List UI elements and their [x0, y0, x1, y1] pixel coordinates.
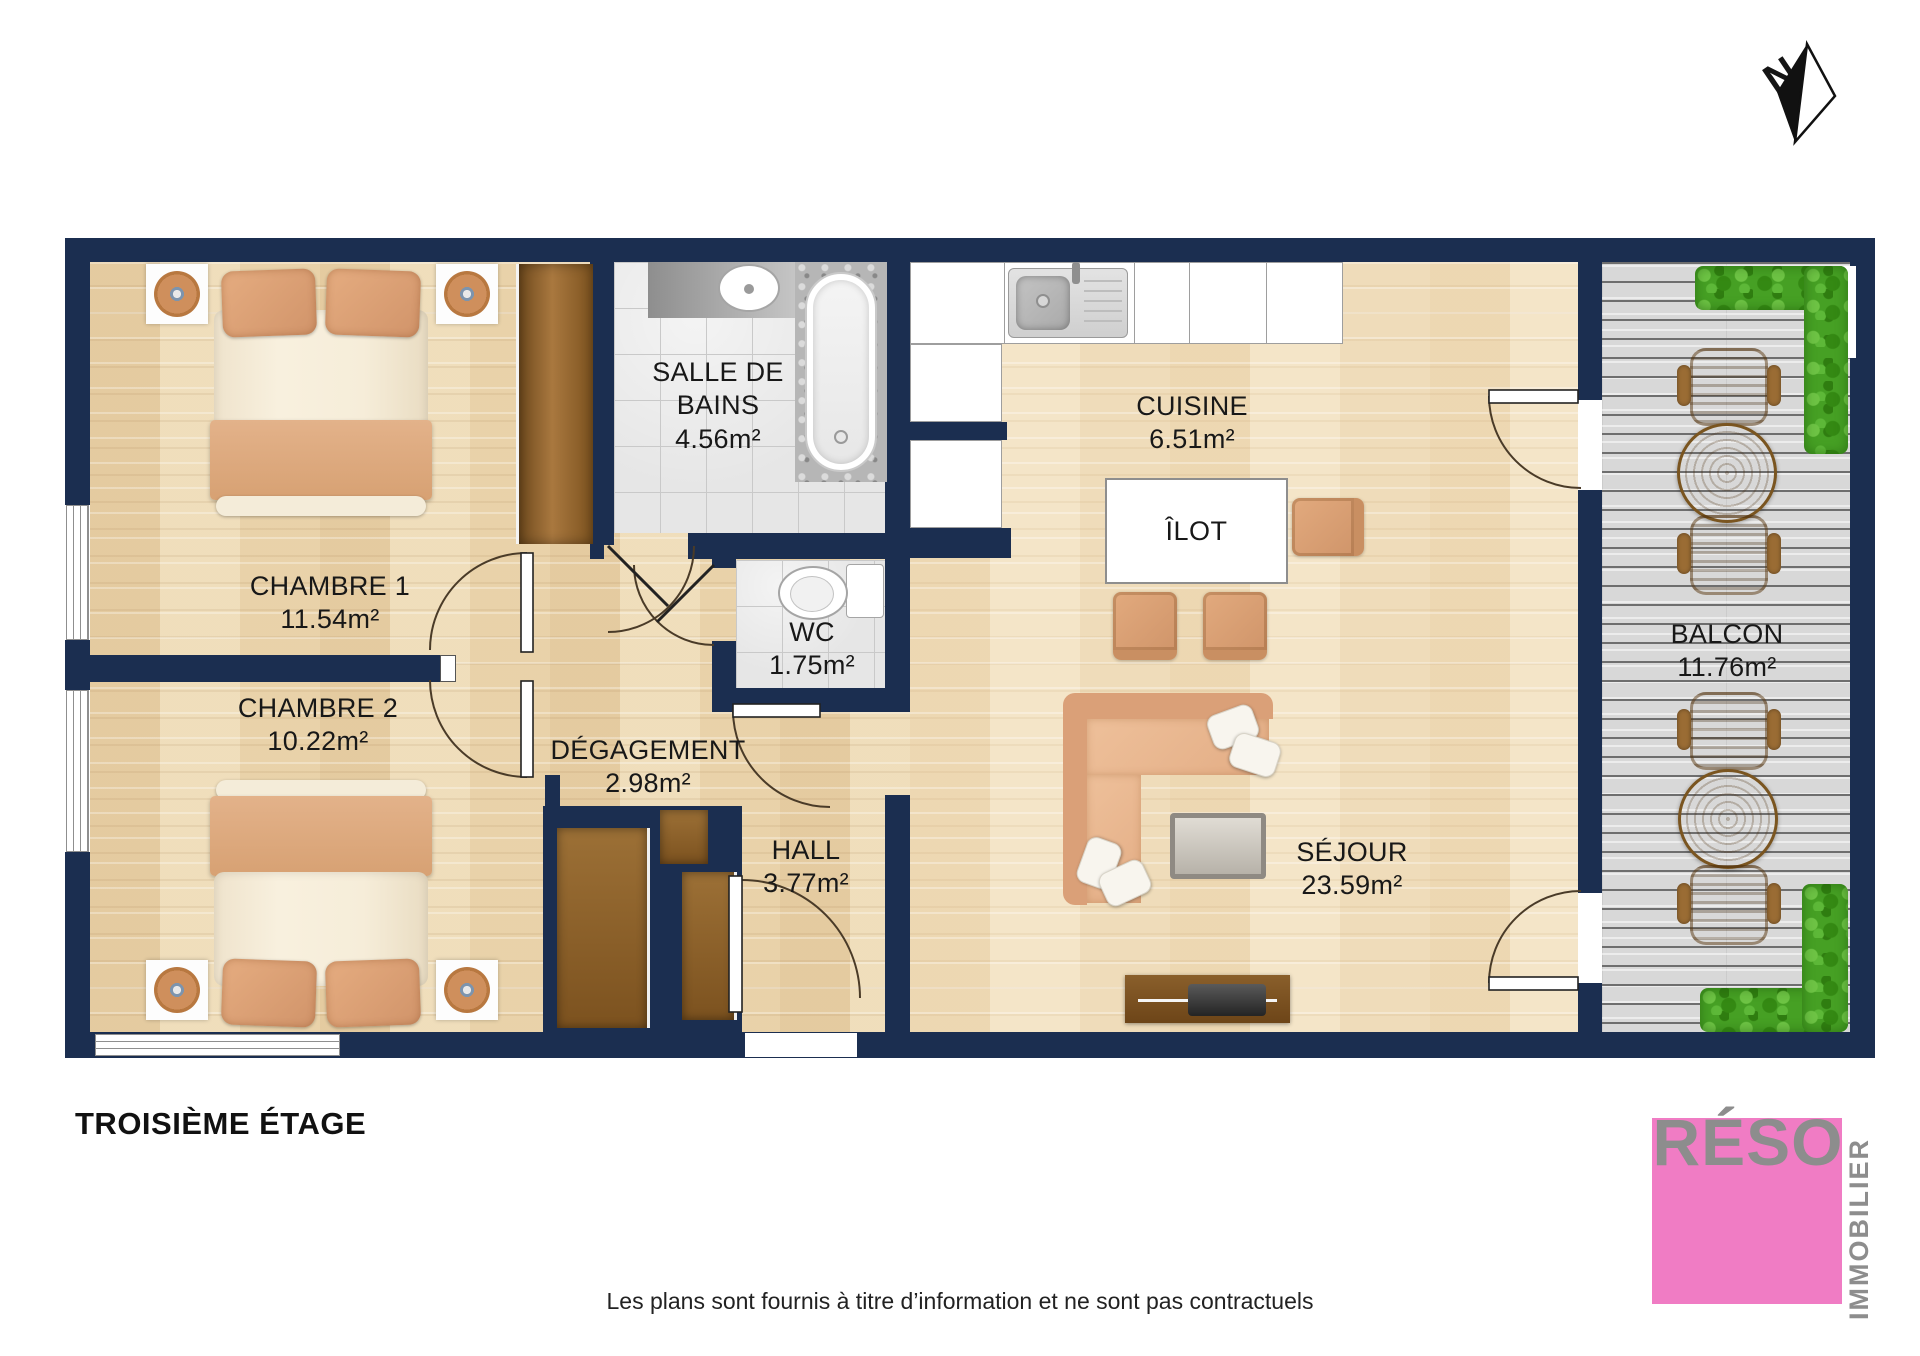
room-name: BALCON [1627, 618, 1827, 651]
room-name: CHAMBRE 2 [198, 692, 438, 725]
page-title: TROISIÈME ÉTAGE [75, 1106, 366, 1142]
room-name: SÉJOUR [1232, 836, 1472, 869]
room-name: SALLE DE BAINS [633, 356, 803, 423]
north-arrow-icon: N [1757, 30, 1857, 170]
door-leaf [733, 704, 820, 717]
disclaimer-text: Les plans sont fournis à titre d’informa… [0, 1288, 1920, 1315]
room-area: 23.59m² [1232, 869, 1472, 902]
room-name: HALL [716, 834, 896, 867]
room-area: 1.75m² [752, 649, 872, 682]
door-leaf [1489, 977, 1578, 990]
room-label-degagement: DÉGAGEMENT 2.98m² [508, 734, 788, 801]
room-name: CUISINE [1072, 390, 1312, 423]
room-area: 11.76m² [1627, 651, 1827, 684]
room-label-wc: WC 1.75m² [752, 616, 872, 683]
room-area: 6.51m² [1072, 423, 1312, 456]
room-label-chambre1: CHAMBRE 1 11.54m² [210, 570, 450, 637]
room-label-sejour: SÉJOUR 23.59m² [1232, 836, 1472, 903]
door-leaf-diagonal [657, 565, 714, 622]
room-area: 10.22m² [198, 725, 438, 758]
room-name: WC [752, 616, 872, 649]
room-area: 4.56m² [633, 423, 803, 456]
room-label-balcon: BALCON 11.76m² [1627, 618, 1827, 685]
room-name: DÉGAGEMENT [508, 734, 788, 767]
door-arc-kitchen-balcony [1489, 396, 1581, 488]
room-area: 11.54m² [210, 603, 450, 636]
door-leaf [1489, 390, 1578, 403]
room-area: 2.98m² [508, 767, 788, 800]
room-label-chambre2: CHAMBRE 2 10.22m² [198, 692, 438, 759]
room-name: CHAMBRE 1 [210, 570, 450, 603]
door-leaf [521, 553, 533, 652]
door-leaf-diagonal [608, 546, 668, 606]
room-label-salle-de-bains: SALLE DE BAINS 4.56m² [633, 356, 803, 456]
floor-plan-page: ÎLOT [0, 0, 1920, 1356]
room-area: 3.77m² [716, 867, 896, 900]
logo-tagline-text: IMMOBILIER [1844, 1124, 1875, 1320]
logo-brand-text: RÉSO [1648, 1104, 1848, 1180]
room-label-hall: HALL 3.77m² [716, 834, 896, 901]
door-arc-sejour-balcony [1489, 891, 1581, 983]
room-label-cuisine: CUISINE 6.51m² [1072, 390, 1312, 457]
